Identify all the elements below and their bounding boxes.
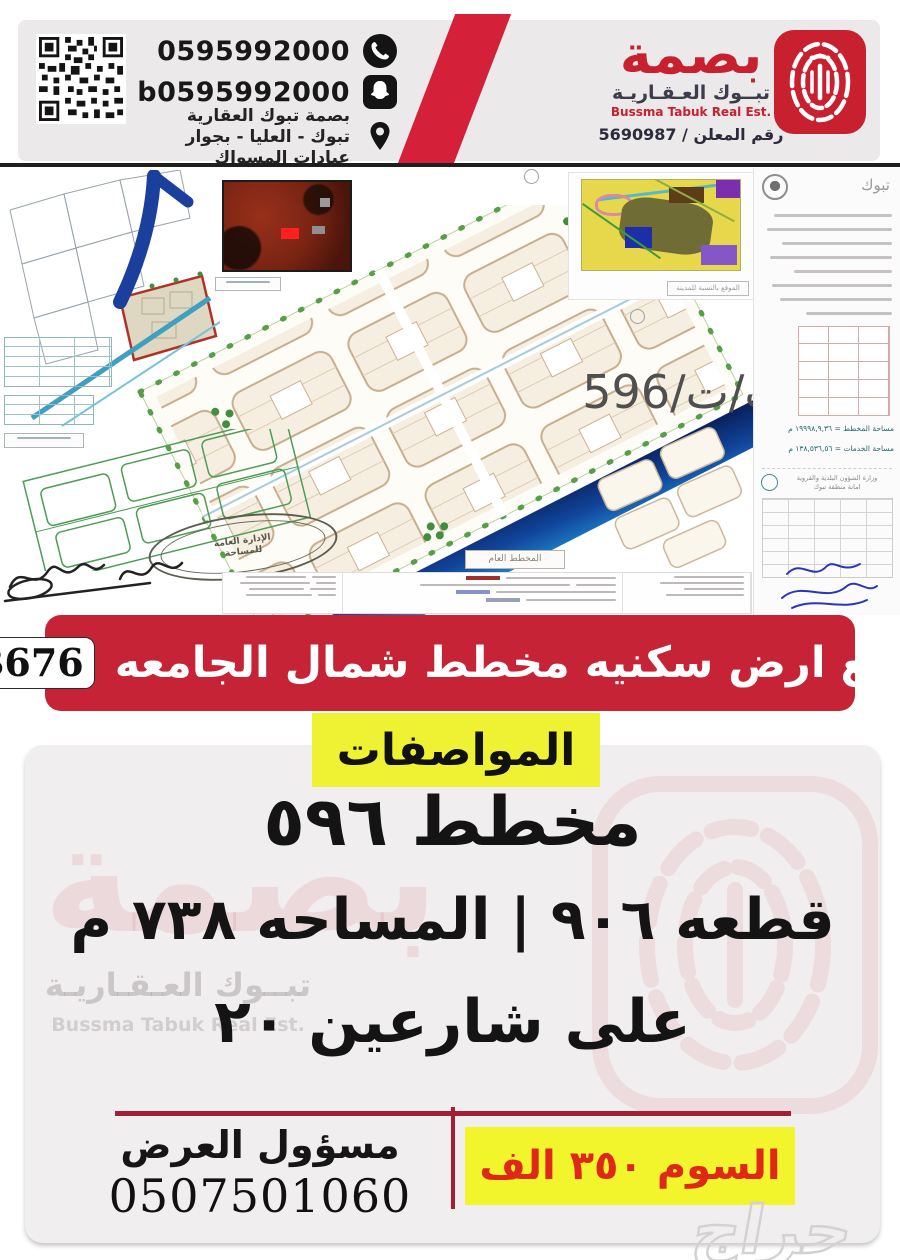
contact-label: مسؤول العرض [85,1123,435,1167]
document-city: تبوك [861,176,890,194]
zoning-map-panel: الموقع بالنسبة للمدينة [568,172,754,300]
brand-tagline-ar: تبــوك العـقـاريـة [596,82,786,104]
zoning-patch-purple [716,180,740,198]
listing-code-badge: B676 [0,637,95,689]
whatsapp-contact-row: 0595992000 [128,32,398,70]
contact-phone: 0507501060 [85,1169,435,1223]
specs-box: بصمة تبــوك العـقـاريـة Bussma Tabuk Rea… [25,745,880,1243]
legend-table-right [623,573,751,613]
diagonal-stripe [397,14,511,166]
official-signature [772,556,882,615]
coordinates-table-2 [4,395,94,425]
fingerprint-logo [772,28,868,136]
plans-section: الموقع بالنسبة للمدينة ت/ت/596 تبوك مساح… [0,167,900,615]
satellite-plot-marker [281,228,299,239]
site-watermark: حراج [631,1192,900,1260]
spec-plan-line: مخطط ٥٩٦ [25,783,880,862]
specs-heading: المواصفات [312,713,600,787]
whatsapp-number: 0595992000 [157,36,350,67]
price-label: السوم ٣٥٠ الف [479,1143,780,1189]
plan-area-line: مساحة المخطط = ١٩٩٩٨,٩,٣٦ م [759,424,894,433]
coordinates-table [4,337,112,387]
sheet-marker-1 [524,169,539,184]
whatsapp-icon [362,33,398,69]
cadastral-plan-drawing [2,170,220,428]
deed-document: تبوك مساحة المخطط = ١٩٩٩٨,٩,٣٦ م مساحة ا… [753,168,900,615]
zoning-patch-purple-2 [701,245,737,265]
services-area-line: مساحة الخدمات = ١٣٨,٥٣٦,٥٦ م [759,444,894,453]
legend-strip [222,572,752,614]
footer-divider-vertical [451,1107,455,1209]
legend-table-left [223,573,343,613]
document-table [798,326,890,416]
secondary-plan-drawing [590,419,770,579]
contact-block: مسؤول العرض 0507501060 [85,1123,435,1223]
advertiser-number: رقم المعلن / 5690987 [596,125,786,144]
spec-streets-line: على شارعين ٢٠ [25,987,880,1057]
qr-code [36,34,126,124]
brand-block: بصمة تبــوك العـقـاريـة Bussma Tabuk Rea… [596,26,786,144]
city-location-caption: الموقع بالنسبة للمدينة [667,281,749,296]
ministry-crest-icon [762,174,788,200]
ministry-line1: وزارة الشؤون البلدية والقروية [782,474,892,483]
company-name: بصمة تبوك العقارية [128,106,350,127]
flyer-page: 0595992000 b0595992000 بصمة تبوك العقاري… [0,0,900,1260]
company-address: بصمة تبوك العقارية تبوك - العليا - بجوار… [128,106,350,169]
listing-title: للبيع ارض سكنيه مخطط شمال الجامعه [115,638,900,688]
zoning-map [581,179,741,271]
brand-name: بصمة [596,26,786,84]
location-pin-icon [362,119,398,155]
ministry-header: وزارة الشؤون البلدية والقروية امانة منطق… [782,474,892,492]
round-stamp-icon [761,474,778,491]
legend-rows [343,573,623,613]
snapchat-account: b0595992000 [137,77,350,108]
qr-code-icon [39,37,123,121]
document-separator [762,468,892,469]
address-row: بصمة تبوك العقارية تبوك - العليا - بجوار… [128,114,398,160]
snapchat-icon [362,74,398,110]
brand-tagline-en: Bussma Tabuk Real Est. [596,105,786,119]
satellite-building [312,226,325,234]
handwritten-signature [0,549,235,615]
spec-plot-line: قطعه ٩٠٦ | المساحه ٧٣٨ م [25,887,880,953]
satellite-image [222,180,352,272]
master-plan-caption: المخطط العام [465,550,565,569]
listing-title-banner: للبيع ارض سكنيه مخطط شمال الجامعه B676 [45,615,855,711]
header-panel: 0595992000 b0595992000 بصمة تبوك العقاري… [18,20,880,161]
ministry-line2: امانة منطقة تبوك [782,483,892,492]
plan-label-box [215,277,281,291]
satellite-building-2 [320,198,330,207]
sheet-marker-2 [630,309,645,324]
